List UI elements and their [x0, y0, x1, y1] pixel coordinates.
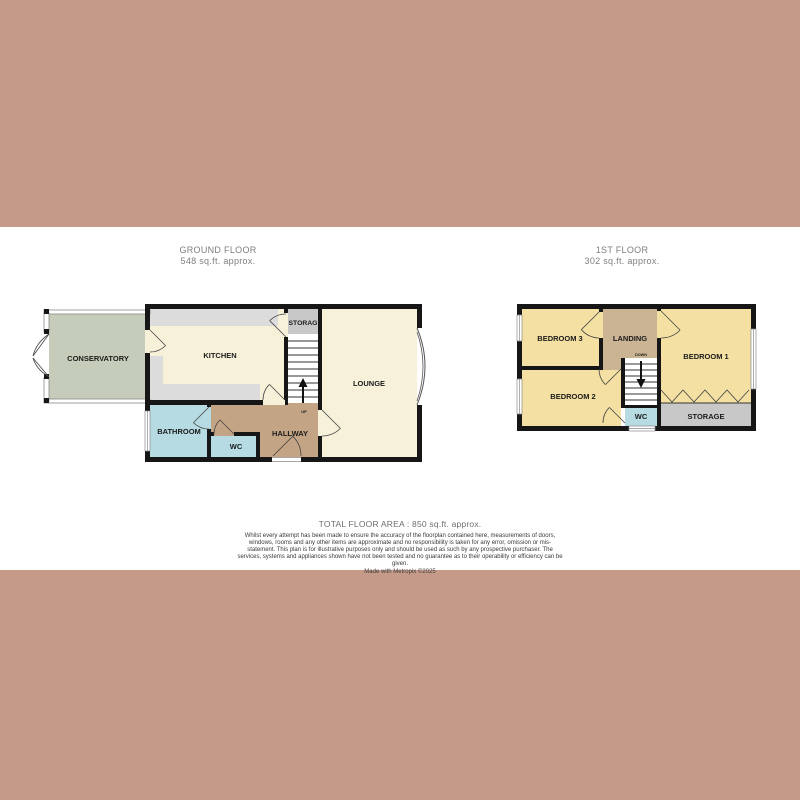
conservatory-window-bottom [44, 399, 150, 403]
conservatory-window-top [44, 310, 150, 314]
kitchen-counter-bottom [150, 384, 260, 400]
total-floor-area: TOTAL FLOOR AREA : 850 sq.ft. approx. [0, 519, 800, 529]
disclaimer-text: Whilst every attempt has been made to en… [235, 533, 565, 568]
label-kitchen: KITCHEN [203, 351, 236, 360]
first-floor-title: 1ST FLOOR [502, 245, 742, 256]
conservatory-window-left-lower [44, 378, 49, 401]
first-floor-plan: BEDROOM 3 LANDING BEDROOM 1 BEDROOM 2 WC… [510, 298, 762, 438]
bottom-border-band [0, 570, 800, 800]
kitchen-counter-left [150, 356, 163, 384]
label-storage-ground: STORAG [289, 320, 318, 327]
ground-floor-plan: CONSERVATORY KITCHEN STORAG LOUNGE BATHR… [30, 298, 435, 470]
first-floor-title-block: 1ST FLOOR 302 sq.ft. approx. [502, 245, 742, 267]
label-bedroom2: BEDROOM 2 [550, 392, 595, 401]
label-wc-ground: WC [230, 442, 243, 451]
ground-floor-area: 548 sq.ft. approx. [98, 256, 338, 267]
metropix-credit: Made with Metropix ©2025 [0, 568, 800, 576]
footer: TOTAL FLOOR AREA : 850 sq.ft. approx. Wh… [0, 519, 800, 576]
label-bedroom3: BEDROOM 3 [537, 334, 582, 343]
label-bedroom1: BEDROOM 1 [683, 352, 728, 361]
label-conservatory: CONSERVATORY [67, 354, 129, 363]
kitchen-counter-top [150, 309, 278, 326]
conservatory-french-doors [33, 334, 49, 377]
ground-floor-title: GROUND FLOOR [98, 245, 338, 256]
lounge-bay-window [417, 328, 425, 405]
label-bathroom: BATHROOM [157, 427, 201, 436]
ground-floor-title-block: GROUND FLOOR 548 sq.ft. approx. [98, 245, 338, 267]
label-up: UP [301, 409, 307, 414]
label-down: DOWN [635, 353, 647, 357]
label-lounge: LOUNGE [353, 379, 385, 388]
first-floor-area: 302 sq.ft. approx. [502, 256, 742, 267]
label-landing: LANDING [613, 334, 647, 343]
label-hallway: HALLWAY [272, 429, 308, 438]
top-border-band [0, 0, 800, 227]
label-storage-first: STORAGE [688, 412, 725, 421]
label-wc-first: WC [635, 412, 648, 421]
ground-windows [145, 411, 150, 451]
